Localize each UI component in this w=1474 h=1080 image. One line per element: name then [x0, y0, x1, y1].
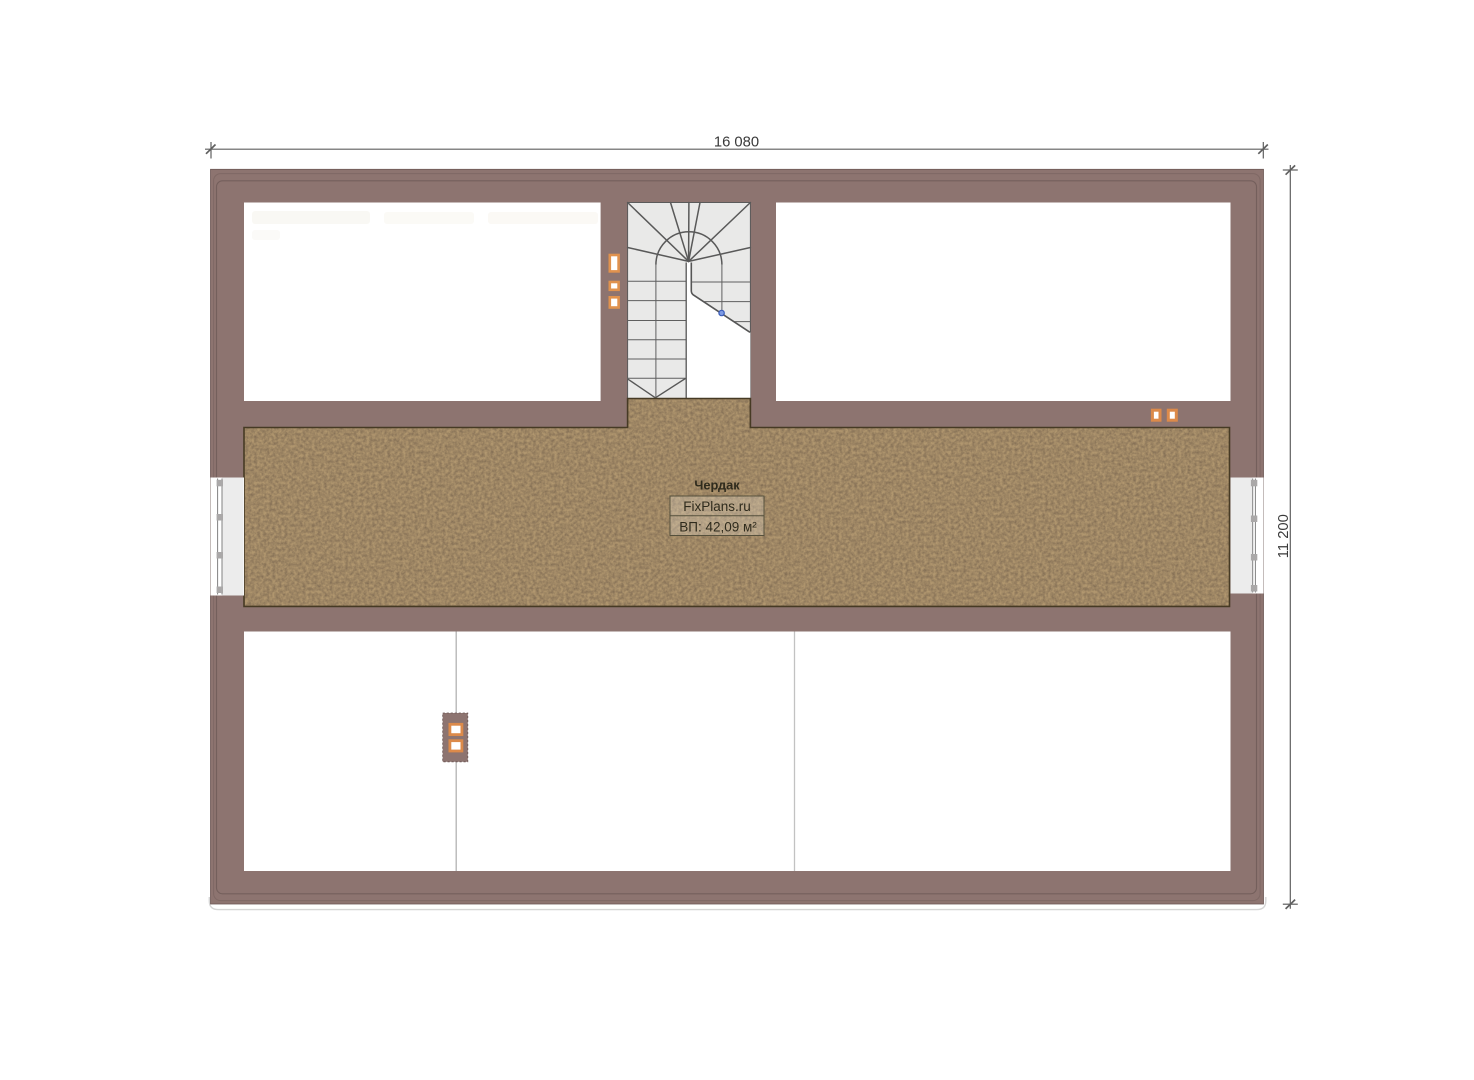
svg-text:Чердак: Чердак [694, 478, 740, 493]
svg-text:ВП: 42,09 м²: ВП: 42,09 м² [679, 519, 757, 534]
svg-text:11 200: 11 200 [1276, 514, 1292, 558]
svg-text:FixPlans.ru: FixPlans.ru [683, 499, 751, 514]
svg-text:16 080: 16 080 [714, 135, 759, 151]
